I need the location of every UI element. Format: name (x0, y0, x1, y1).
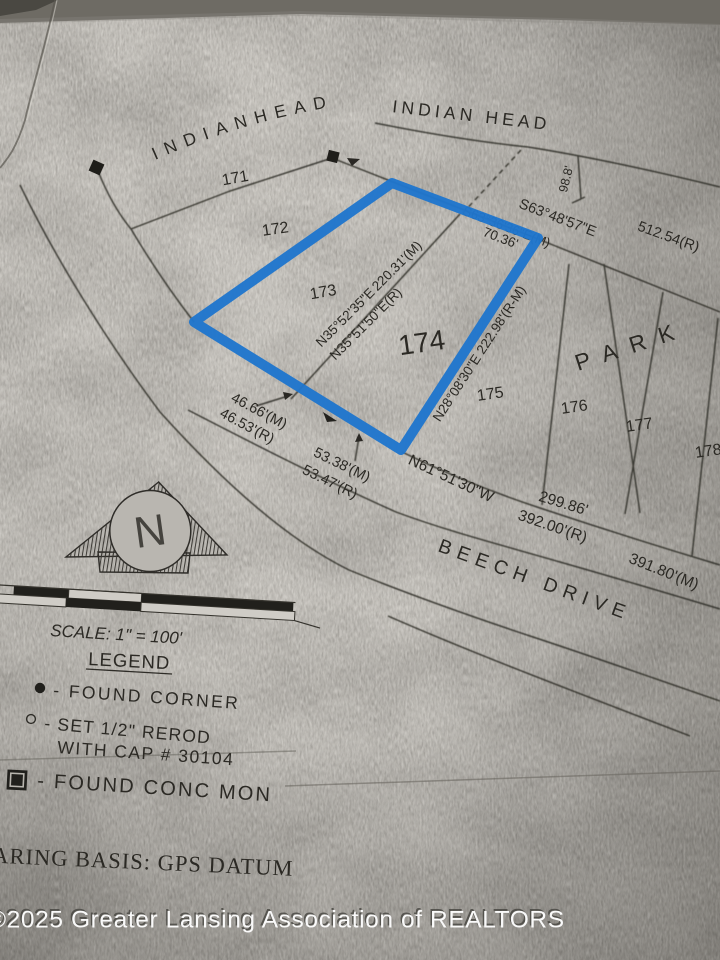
svg-text:174: 174 (396, 324, 447, 361)
svg-text:178: 178 (694, 441, 720, 462)
svg-text:N: N (131, 505, 169, 558)
svg-text:©2025 Greater Lansing Associat: ©2025 Greater Lansing Association of REA… (0, 907, 565, 934)
